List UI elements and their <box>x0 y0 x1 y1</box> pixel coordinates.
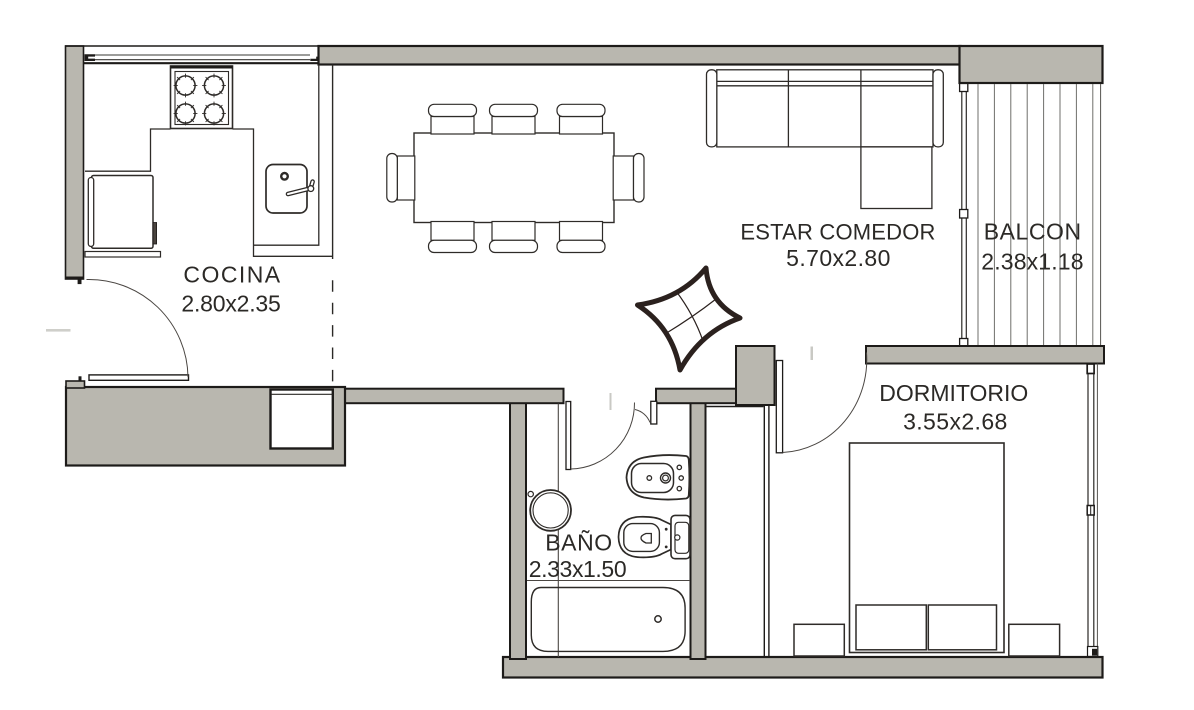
svg-text:DORMITORIO: DORMITORIO <box>879 380 1028 406</box>
svg-text:ESTAR COMEDOR: ESTAR COMEDOR <box>740 220 935 245</box>
svg-text:2.33x1.50: 2.33x1.50 <box>529 556 626 582</box>
svg-text:BAÑO: BAÑO <box>545 530 613 556</box>
svg-text:3.55x2.68: 3.55x2.68 <box>903 408 1008 434</box>
svg-text:COCINA: COCINA <box>183 262 281 288</box>
svg-text:2.38x1.18: 2.38x1.18 <box>981 249 1083 275</box>
svg-text:5.70x2.80: 5.70x2.80 <box>786 245 891 271</box>
svg-text:2.80x2.35: 2.80x2.35 <box>181 291 280 317</box>
svg-text:BALCON: BALCON <box>984 219 1082 245</box>
